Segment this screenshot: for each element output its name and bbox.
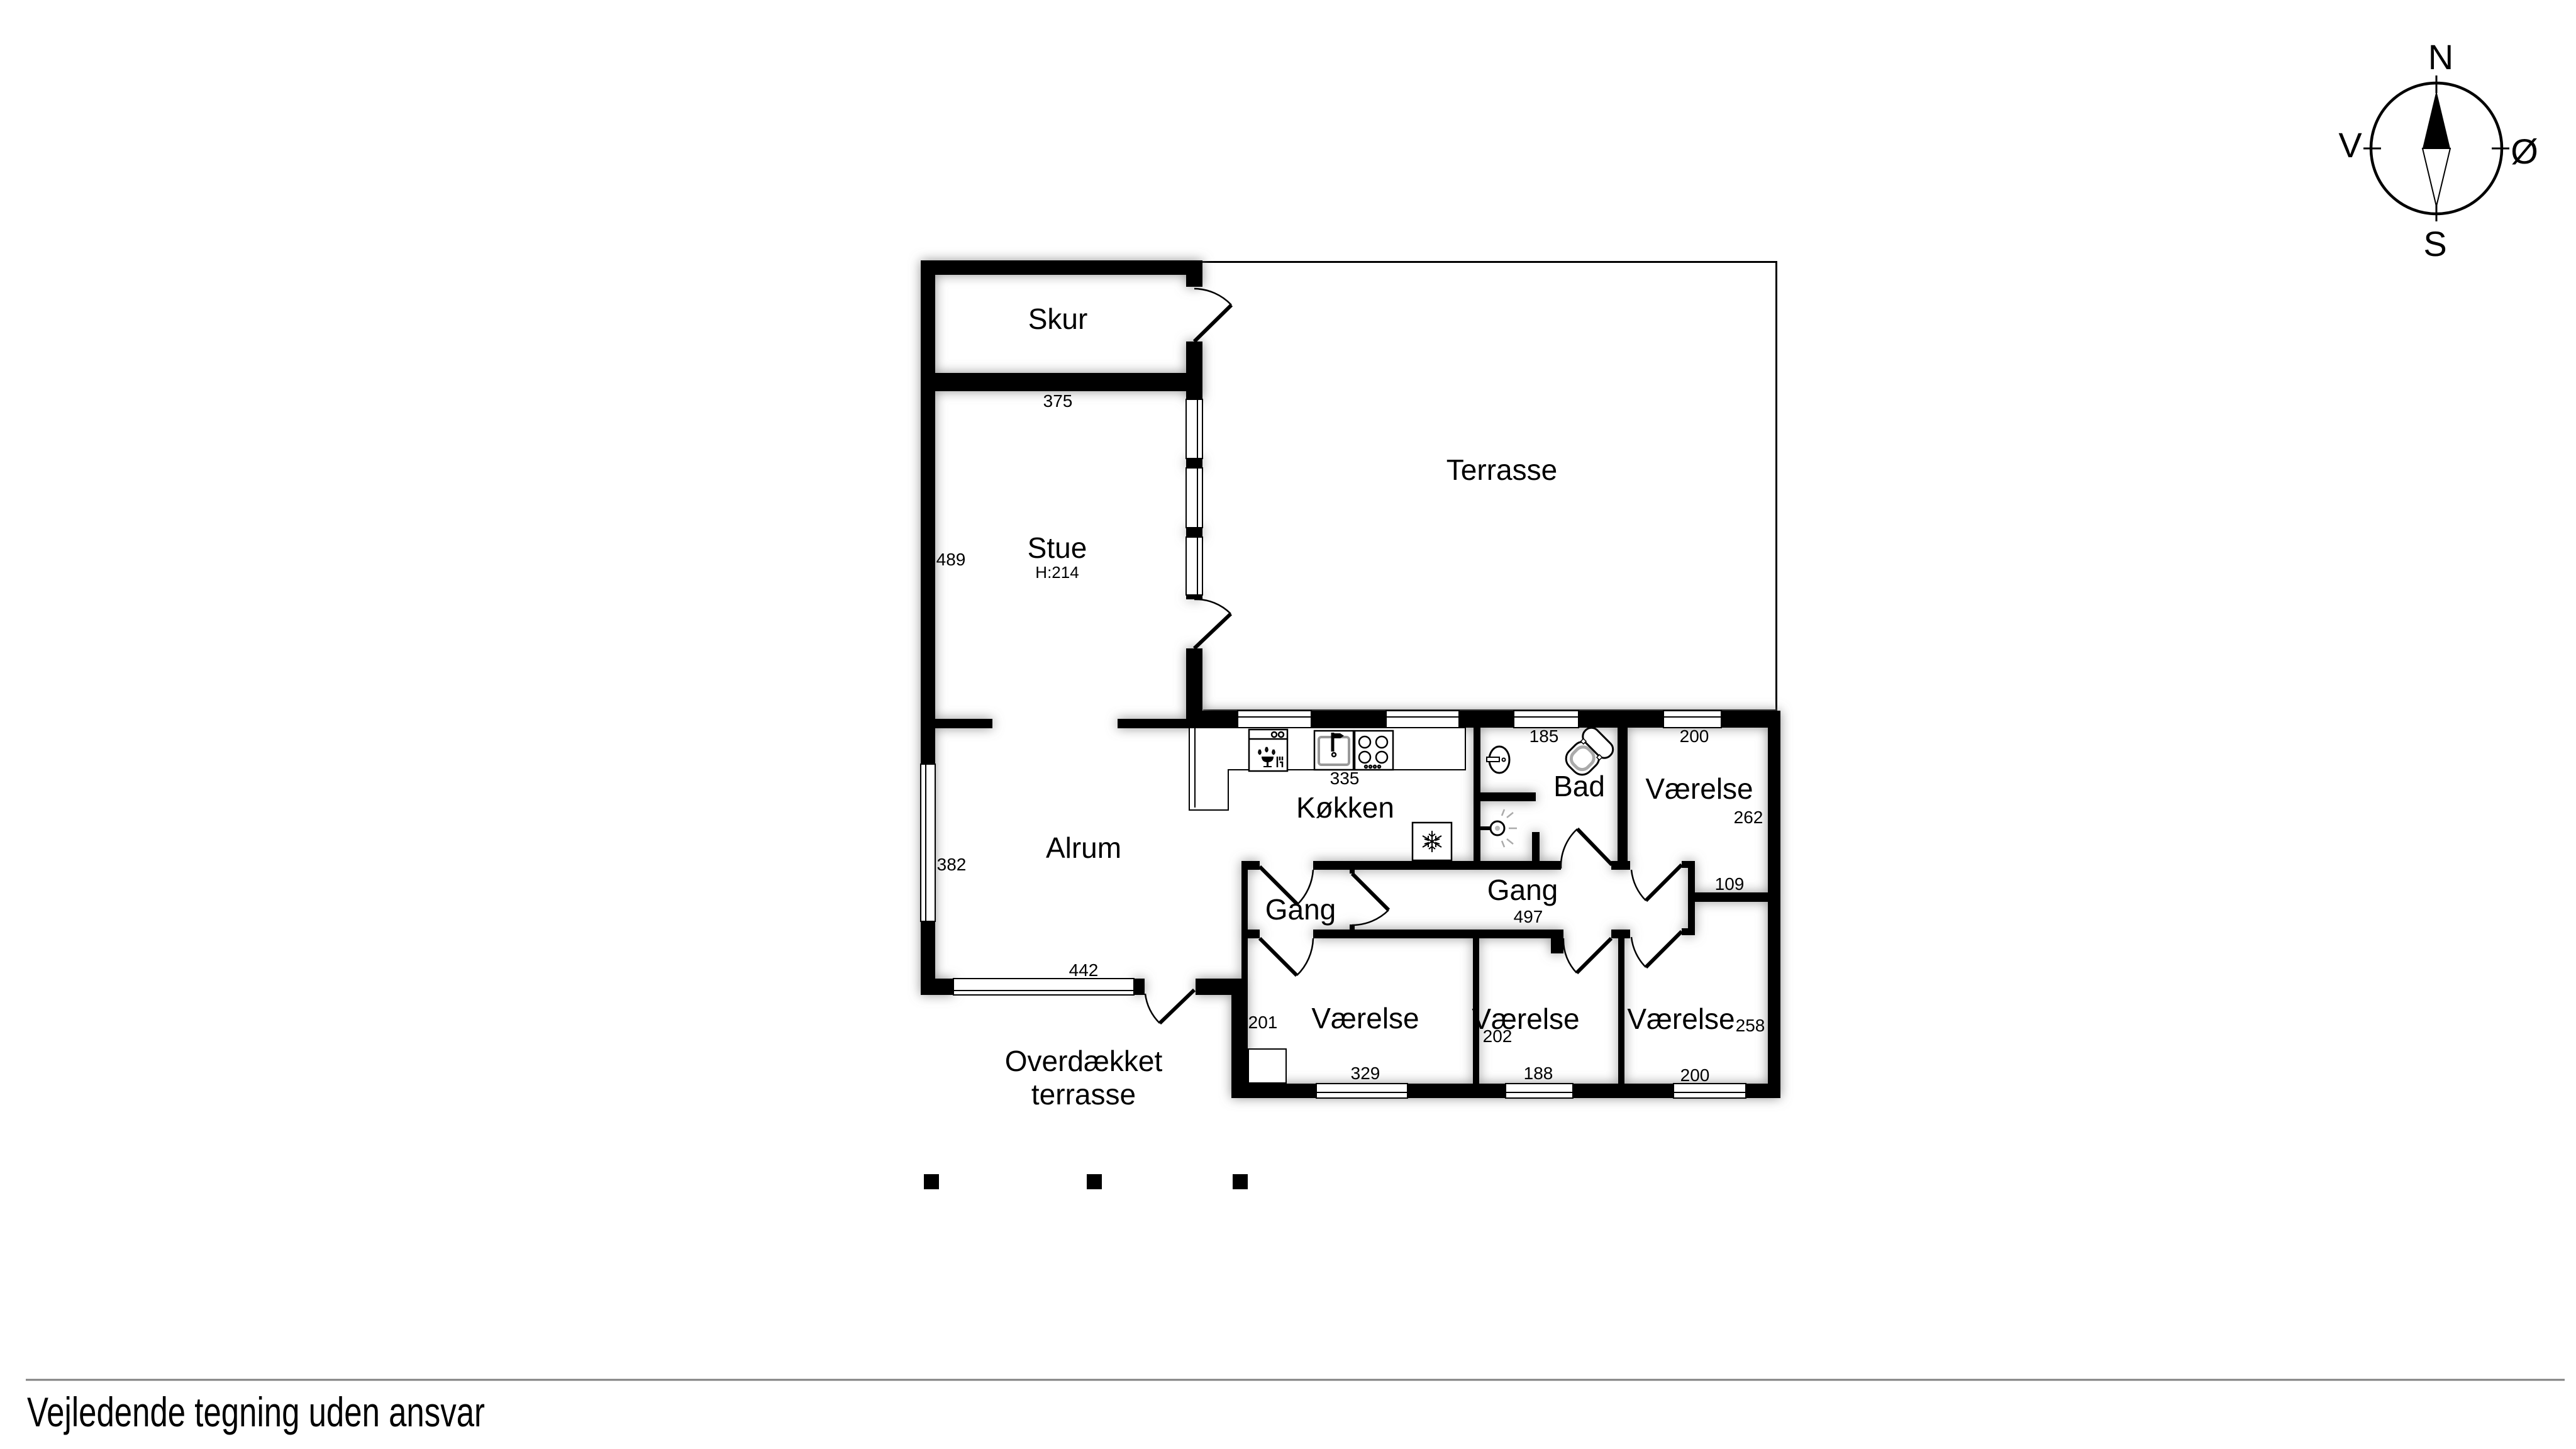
svg-text:Skur: Skur (1028, 303, 1088, 335)
svg-text:Bad: Bad (1553, 770, 1605, 802)
svg-text:262: 262 (1734, 808, 1763, 827)
svg-text:Ø: Ø (2511, 131, 2538, 171)
svg-text:382: 382 (937, 855, 967, 874)
svg-text:H:214: H:214 (1035, 563, 1079, 582)
svg-text:N: N (2428, 37, 2453, 77)
svg-text:489: 489 (936, 550, 966, 569)
svg-text:188: 188 (1524, 1063, 1553, 1083)
svg-text:185: 185 (1529, 726, 1559, 746)
svg-text:442: 442 (1069, 960, 1099, 980)
svg-text:terrasse: terrasse (1031, 1078, 1136, 1111)
svg-text:Køkken: Køkken (1296, 791, 1394, 824)
svg-text:201: 201 (1248, 1013, 1278, 1032)
svg-text:Gang: Gang (1487, 874, 1558, 906)
svg-text:Værelse: Værelse (1645, 772, 1753, 805)
svg-text:200: 200 (1680, 1065, 1710, 1085)
svg-text:S: S (2423, 224, 2446, 264)
svg-text:Vejledende tegning uden ansvar: Vejledende tegning uden ansvar (27, 1389, 485, 1435)
svg-text:109: 109 (1715, 874, 1745, 894)
svg-text:Gang: Gang (1265, 893, 1336, 926)
svg-text:497: 497 (1514, 907, 1543, 926)
svg-text:Alrum: Alrum (1046, 831, 1121, 864)
svg-text:Værelse: Værelse (1311, 1002, 1419, 1035)
svg-text:335: 335 (1330, 769, 1360, 788)
svg-text:Terrasse: Terrasse (1446, 453, 1557, 486)
svg-text:200: 200 (1680, 726, 1709, 746)
svg-text:202: 202 (1483, 1026, 1513, 1046)
svg-text:Værelse: Værelse (1627, 1002, 1735, 1035)
svg-text:258: 258 (1736, 1016, 1765, 1035)
svg-text:329: 329 (1351, 1063, 1380, 1083)
svg-text:Overdækket: Overdækket (1005, 1045, 1163, 1077)
svg-text:V: V (2338, 125, 2362, 165)
svg-text:Stue: Stue (1028, 531, 1087, 564)
svg-text:375: 375 (1043, 391, 1073, 411)
